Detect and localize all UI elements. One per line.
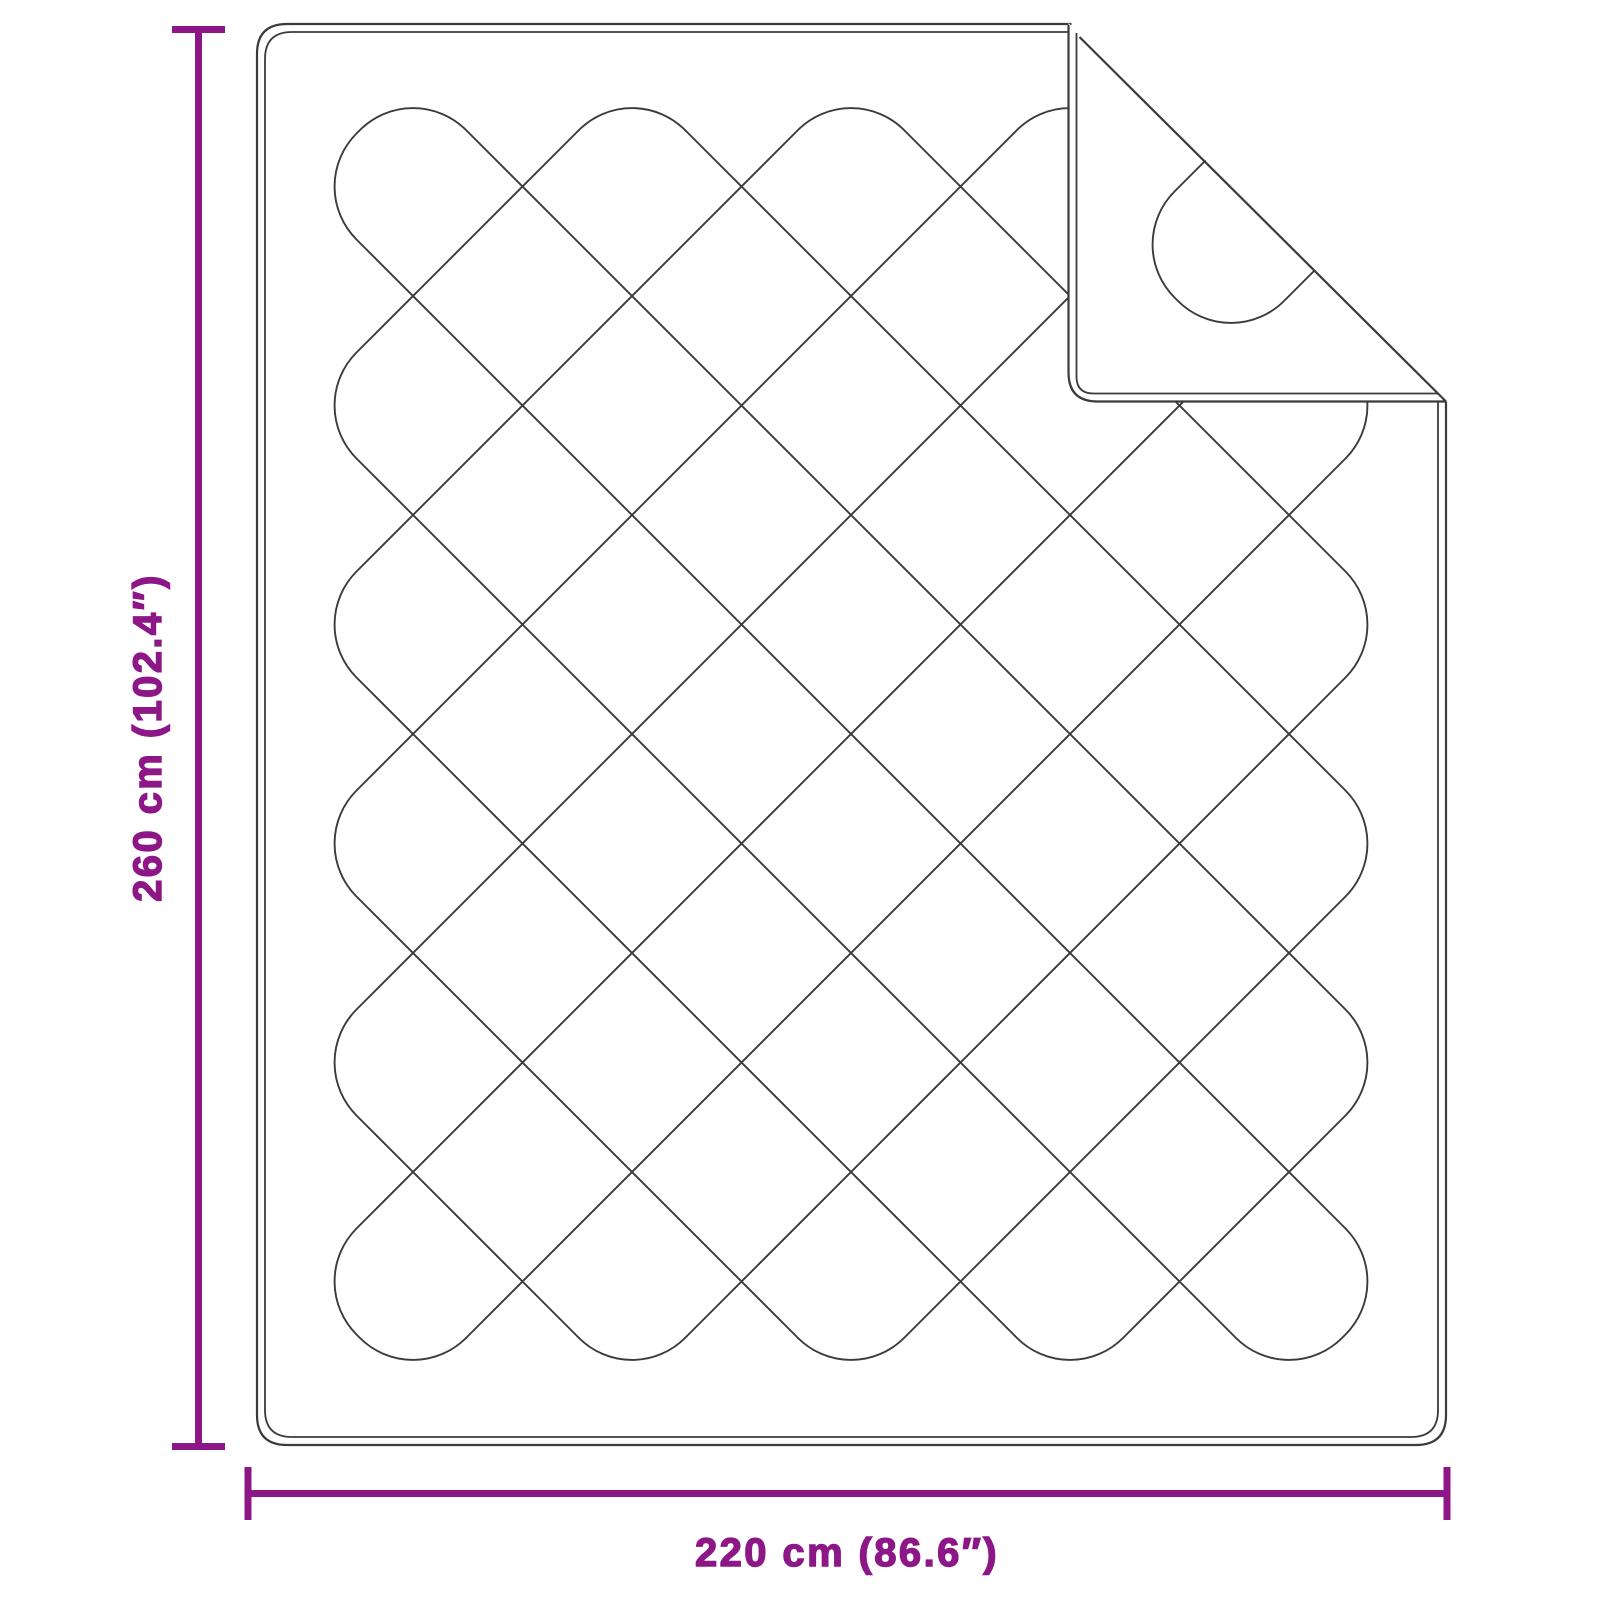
svg-text:260 cm (102.4″): 260 cm (102.4″)	[126, 573, 170, 902]
svg-text:220 cm (86.6″): 220 cm (86.6″)	[695, 1531, 999, 1575]
